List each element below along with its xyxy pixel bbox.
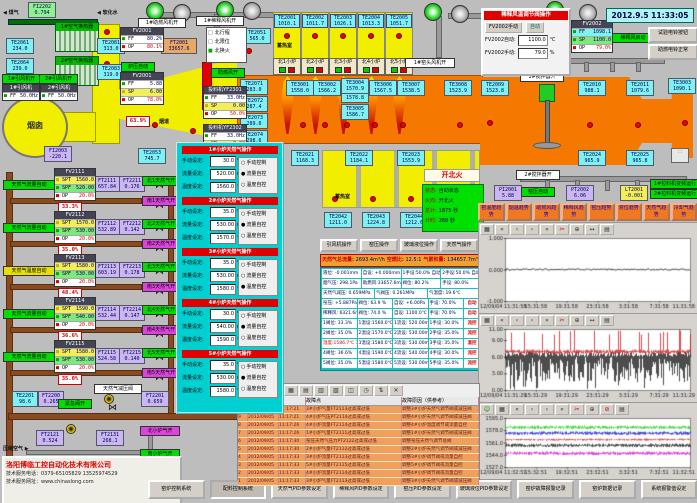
param-cell: 1阀位: 33.3%: [322, 319, 357, 328]
chart-tool-icon[interactable]: «: [495, 224, 509, 235]
chart-tool-icon[interactable]: ▤: [615, 404, 629, 415]
chamber-temp-tag: TE20031026.1: [330, 14, 356, 28]
chart-tool-icon[interactable]: ⊘: [600, 404, 614, 415]
section-title: 4#小炉天然气操作: [182, 299, 278, 307]
radio-option[interactable]: ●温度自控: [239, 282, 277, 293]
manual-set-input[interactable]: 35.0: [210, 360, 236, 371]
status-label: 开北火: [424, 169, 480, 182]
manual-set-input[interactable]: 30.0: [210, 156, 236, 167]
chart-tool-icon[interactable]: ‹: [525, 404, 539, 415]
pressure-gauge-icon: [66, 424, 76, 434]
trend-button[interactable]: 冷却气趋势: [671, 203, 697, 221]
checkbox-icon: □: [208, 39, 213, 45]
param-cell: 3手设: 35.0%: [429, 339, 464, 348]
chart-panel-temperature: ☺▦«‹›»✂⊕⊘▤: [478, 402, 697, 480]
radio-icon: ●: [241, 324, 245, 330]
controller-title: 投料机YF2301: [204, 87, 246, 94]
temp-set-input[interactable]: 1560.0: [210, 182, 236, 193]
section-title: 5#小炉天然气操作: [182, 350, 278, 358]
param-cell: 5阀位: 35.0%: [322, 359, 357, 368]
chart-tool-icon[interactable]: ⊕: [570, 224, 584, 235]
chart-tool-icon[interactable]: ☺: [480, 404, 494, 415]
status-label: 1#窑头风机开: [405, 58, 455, 68]
alarm-row[interactable]: 8 2012/09/05 11:17:26 4#小炉流量FT2114过高或过低 …: [238, 422, 479, 430]
instrument-tag: TE20221184.1: [345, 150, 373, 166]
nav-button[interactable]: 窑炉数据记录: [579, 480, 636, 499]
furnace-gas-popup: 1#小炉天然气操作 手动设定: 30.0 % 流量设定: 520.00 m³/h…: [176, 142, 284, 414]
instrument-tag: PI20015.88: [494, 185, 522, 201]
trend-button[interactable]: 窑温度趋势: [478, 203, 505, 221]
instrument-tag: TE20211168.3: [291, 150, 319, 166]
chart-toolbar: ▦«‹›»✂⊕↔▤: [479, 314, 697, 326]
trend-button[interactable]: 天然气趋势: [643, 203, 670, 221]
param-cell: 2手设: 35.0%: [429, 329, 464, 338]
manual-set-label: 手动设定:: [182, 157, 210, 166]
temp-set-input[interactable]: 1580.0: [210, 284, 236, 295]
instrument-tag: FT22010.659: [141, 391, 169, 407]
sensor-dot-icon: [344, 122, 350, 128]
temp-set-input[interactable]: 1580.0: [210, 386, 236, 397]
controller-row: ■ OP20.0%: [55, 278, 95, 286]
controller-title: 2#引风机: [41, 85, 77, 92]
status-label: 北3天然气开: [142, 262, 180, 272]
param-row: 液位: -0.001mm自设: +0.000mm1手设:50.0% 自动2手设:…: [322, 269, 480, 278]
controller-faceplate[interactable]: FV2001 ■ FF80.2% ■ OP80.1%: [120, 27, 164, 52]
flow-set-input[interactable]: 530.00: [210, 271, 236, 282]
instrument-tag: TE20091523.8: [481, 80, 509, 96]
sensor-dot-icon: [368, 33, 374, 39]
controller-title: 投料机YF2302: [204, 125, 246, 132]
chamber-temp-tag: TE20021011.7: [302, 14, 328, 28]
fan-icon[interactable]: [451, 5, 469, 23]
controller-row: ■ SPF540.00: [55, 313, 95, 321]
radio-option[interactable]: ○手动控制: [239, 209, 277, 220]
radio-icon: ○: [241, 182, 245, 188]
status-label: 天然气流量自动: [3, 223, 55, 233]
alarm-row[interactable]: 1 2012/09/05 11:17:33 3#小炉气量FT2113过高或过低 …: [238, 478, 479, 486]
param-cell: 1温设:1560.0℃: [358, 319, 393, 328]
fv2002-manual-unit: %: [550, 49, 555, 58]
param-cell: 3流设: 530.00m³/h: [393, 339, 428, 348]
temp-set-input[interactable]: 1590.0: [210, 335, 236, 346]
instrument-tag: TE2053745.7: [138, 148, 166, 164]
instrument-tag: TE2025965.8: [626, 150, 654, 166]
port-on-indicator: [279, 67, 286, 73]
trend-button[interactable]: 烟温趋势: [506, 203, 533, 221]
radio-option[interactable]: ●流量自控: [239, 220, 277, 231]
valve-icon[interactable]: ⋈: [108, 404, 117, 413]
controller-row: ■ OP78.0%: [121, 96, 163, 104]
fv2002-auto-button[interactable]: 自动: [526, 22, 544, 33]
chart-tool-icon[interactable]: ›: [525, 224, 539, 235]
param-cell: 窑压: +5.887Pa: [322, 299, 357, 308]
alarm-tool-icon[interactable]: ▦: [284, 385, 298, 396]
controller-title: FV2001: [121, 73, 163, 80]
chart-tool-icon[interactable]: »: [555, 404, 569, 415]
instrument-tag: FT2115524.58: [94, 348, 120, 364]
control-mode-group: ○手动控制 ●流量自控 ○温度自控: [238, 157, 278, 194]
status-label: 北4天然气开: [142, 305, 180, 315]
param-cell: 烟气压: 298.1Pa: [322, 279, 361, 288]
instrument-tag: TE30071538.5: [397, 80, 425, 96]
alarm-row[interactable]: 4 2012/09/05 11:17:33 3#小炉流量FT2113过高或过低 …: [238, 454, 479, 462]
radio-option[interactable]: ●流量自控: [239, 169, 277, 180]
chart-tool-icon[interactable]: ↔: [585, 315, 599, 326]
controller-title: FV2112: [55, 212, 95, 219]
section-title: 3#小炉天然气操作: [182, 248, 278, 256]
chart-tool-icon[interactable]: ⊕: [585, 404, 599, 415]
status-label: 南1天然气开: [142, 196, 180, 206]
port-off-indicator: [316, 67, 323, 73]
controller-row: ■ OP50.0%: [204, 110, 246, 118]
alarm-tool-icon[interactable]: ✕: [389, 385, 403, 396]
param-cell: 阀位: 80.2%: [402, 279, 441, 288]
alarm-tool-icon[interactable]: ▤: [299, 385, 313, 396]
level-trend-chart: [479, 235, 696, 311]
sensor-dot-icon: [396, 33, 402, 39]
port-indicators: [330, 67, 356, 73]
param-cell: 2手设:50.0% 自动: [441, 269, 480, 278]
pressure-trend-chart: [479, 326, 696, 400]
controller-faceplate[interactable]: FV2001 ■ FF5.88 ■ SP6.00: [120, 72, 164, 105]
instrument-tag: TE30081523.9: [444, 80, 472, 96]
sensor-dot-icon: [340, 33, 346, 39]
flow-set-label: 流量设定:: [182, 323, 210, 332]
nav-button[interactable]: 窑炉控制系统: [148, 480, 205, 499]
radio-option[interactable]: ○温度自控: [239, 333, 277, 344]
operation-button[interactable]: 玻璃液位操作: [400, 239, 438, 252]
chart-tool-icon[interactable]: ‹: [510, 315, 524, 326]
nav-button[interactable]: 窑炉故障报警记录: [517, 480, 574, 499]
trend-button[interactable]: 助燃风趋势: [533, 203, 560, 221]
port-label: 北3小炉: [330, 59, 356, 66]
controller-row: ■ OP20.0%: [55, 192, 95, 200]
operation-button[interactable]: 天然气操作: [440, 239, 478, 252]
alarm-row[interactable]: 9 2012/09/05 11:17:21 4#小炉气压PT2114过高或过低 …: [238, 414, 479, 422]
chart-toolbar: ▦«‹›»✂⊕↔▤: [479, 223, 697, 235]
burner-port[interactable]: 北4小炉: [357, 58, 385, 75]
pipe: [584, 62, 589, 72]
burner-port[interactable]: 北1小炉: [273, 58, 301, 75]
sensor-dot-icon: [487, 120, 493, 126]
radio-icon: ○: [241, 160, 245, 166]
controller-row: ■ FF80.2%: [121, 35, 163, 43]
param-cell: 2流设: 530.00m³/h: [393, 329, 428, 338]
radio-icon: ●: [241, 284, 245, 290]
param-cell: 阀位: 74.0 %: [358, 309, 393, 318]
sensor-dot-icon: [682, 120, 688, 126]
instrument-tag: FT2111657.84: [94, 176, 120, 192]
radio-icon: ○: [241, 386, 245, 392]
chart-tool-icon[interactable]: ✂: [555, 224, 569, 235]
port-on-indicator: [363, 67, 370, 73]
trend-button[interactable]: 窑压趋势: [588, 203, 615, 221]
status-label: ◀ 煤气: [2, 9, 20, 17]
controller-faceplate[interactable]: FV2115 ■ SPT1580.0 ■ SPF530.00: [54, 340, 96, 373]
radio-icon: ●: [241, 375, 245, 381]
controller-title: FV2001: [121, 28, 163, 35]
status-label: 天然气减压阀: [94, 384, 142, 394]
status-label: 1#引风机开: [2, 74, 41, 84]
stirrer-shaft: [545, 100, 550, 146]
param-cell: 5手设: 35.0%: [429, 359, 464, 368]
fv2002-manual-setpoint-input[interactable]: 79.0: [518, 48, 548, 59]
pipe: [610, 62, 615, 72]
chart-tool-icon[interactable]: ▤: [600, 315, 614, 326]
radio-option[interactable]: ●流量自控: [239, 373, 277, 384]
status-label: 天然气流量自动: [3, 352, 55, 362]
fan-icon[interactable]: [424, 3, 442, 21]
chart-panel-pressure: ▦«‹›»✂⊕↔▤: [478, 313, 697, 403]
controller-row: ■ OP20.0%: [55, 235, 95, 243]
param-cell: 自设: +6.00Pa: [393, 299, 428, 308]
status-label: 天然气流量自动: [3, 309, 55, 319]
flow-set-input[interactable]: 530.00: [210, 373, 236, 384]
operation-button[interactable]: 窑压操作: [360, 239, 398, 252]
param-cell: 5温设:1580.0℃: [358, 359, 393, 368]
status-label: 1#拉料机变频运行: [650, 179, 697, 189]
status-label: 北小炉气开: [140, 426, 180, 436]
alarm-row[interactable]: 5 2012/09/05 11:17:30 2#小炉气量FT2112过高或过低 …: [238, 446, 479, 454]
radio-icon: ○: [241, 233, 245, 239]
bell-button[interactable]: 试验电铃按钮: [648, 27, 697, 43]
fv2002-auto-setpoint-input[interactable]: 1100.0: [518, 35, 548, 46]
control-mode-group: ○手动控制 ●流量自控 ○温度自控: [238, 310, 278, 347]
control-mode-group: ○手动控制 ●流量自控 ○温度自控: [238, 208, 278, 245]
chart-tool-icon[interactable]: ▦: [495, 404, 509, 415]
port-on-indicator: [307, 67, 314, 73]
valve-position-readout: 63.9%: [126, 116, 150, 127]
temperature-trend-chart: [479, 415, 696, 477]
controller-row: ■ FF1098.1: [572, 28, 612, 36]
status-label: 助燃风开: [211, 68, 245, 78]
instrument-tag: TE20231553.9: [397, 150, 425, 166]
alarm-row[interactable]: 2 2012/09/05 11:17:33 4#小炉流量FT2114过高或过低 …: [238, 470, 479, 478]
param-cell: 手设: 80.0%: [441, 279, 480, 288]
alarm-row[interactable]: 6 2012/09/05 11:17:30 窑压天然气压力PT2122过高或过低…: [238, 438, 479, 446]
instrument-tag: TE30011558.0: [286, 80, 314, 96]
radio-option[interactable]: ○温度自控: [239, 231, 277, 242]
radio-option[interactable]: ○温度自控: [239, 180, 277, 191]
chart-tool-icon[interactable]: »: [540, 224, 554, 235]
chart-tool-icon[interactable]: «: [495, 315, 509, 326]
operation-button[interactable]: 引风机操作: [320, 239, 358, 252]
radio-option[interactable]: ○手动控制: [239, 158, 277, 169]
status-row: 火向:开北火: [425, 196, 481, 206]
pipe: [436, 16, 442, 58]
status-label: 天然气温度自动: [3, 266, 55, 276]
sensor-dot-icon: [400, 122, 406, 128]
controller-faceplate[interactable]: FV2111 ■ SPT1560.0 ■ SPF520.00: [54, 168, 96, 201]
alarm-row[interactable]: 3 2012/09/05 11:17:33 5#小炉流量FT2115过高或过低 …: [238, 462, 479, 470]
controller-row: ■ SPF530.00: [55, 356, 95, 364]
instrument-tag: FT200133657.6: [161, 38, 197, 54]
manual-set-input[interactable]: 35.0: [210, 207, 236, 218]
alarm-row[interactable]: 7 2012/09/05 11:17:26 1#小炉气量FT2111过高或过低 …: [238, 430, 479, 438]
chart-tool-icon[interactable]: ✂: [570, 404, 584, 415]
nav-button[interactable]: 系统报警值设定: [641, 480, 697, 499]
radio-option[interactable]: ○流量自控: [239, 271, 277, 282]
controller-faceplate[interactable]: FV2002 ■ FF1098.1 ■ SP1100.0: [571, 20, 613, 53]
controller-row: ■ OP20.0%: [55, 364, 95, 372]
controller-row: ■ SPT1570.0: [55, 219, 95, 227]
alarm-tool-icon[interactable]: ⇅: [374, 385, 388, 396]
chart-tool-icon[interactable]: ↔: [585, 224, 599, 235]
chart-tool-icon[interactable]: ‹: [510, 224, 524, 235]
chart-tool-icon[interactable]: ⊕: [570, 315, 584, 326]
control-mode-group: ○手动控制 ●流量自控 ○温度自控: [238, 361, 278, 398]
burner-port[interactable]: 北3小炉: [329, 58, 357, 75]
radio-option[interactable]: ○手动控制: [239, 362, 277, 373]
bell-button[interactable]: 助燃电铃正常: [648, 44, 697, 60]
pressure-gauge-icon: [104, 394, 114, 404]
controller-row: ■ FF50.0Hz: [3, 92, 39, 100]
controller-row: ■ FF5.88: [121, 80, 163, 88]
controller-faceplate[interactable]: FV2114 ■ SPT1590.0 ■ SPF540.00: [54, 297, 96, 330]
radio-option[interactable]: ○手动控制: [239, 260, 277, 271]
manual-set-input[interactable]: 30.0: [210, 309, 236, 320]
controller-faceplate[interactable]: 1#引风机 ■ FF50.0Hz: [2, 84, 40, 101]
radio-icon: ○: [241, 364, 245, 370]
controller-row: ■ FF50.0Hz: [41, 92, 77, 100]
flow-set-input[interactable]: 530.00: [210, 220, 236, 231]
alarm-rows: 10 2012/09/05 11:17:21 3#小炉气量FT2113过高或过低…: [238, 406, 479, 486]
instrument-tag: TE2024965.9: [578, 150, 606, 166]
param-cell: 手设: 70.0%: [429, 309, 464, 318]
instrument-tag: FI22020.794: [28, 2, 56, 18]
controller-faceplate[interactable]: FV2113 ■ SPT1580.0 ■ SPF530.00: [54, 254, 96, 287]
param-cell: 2阀位: 35.0%: [322, 329, 357, 338]
status-row: 状态:自动状态: [425, 186, 481, 196]
total-item: 空燃比: 12.5:1: [387, 255, 422, 266]
instrument-tag: TE30051586.7: [341, 104, 369, 120]
instrument-tag: TE30041570.9: [341, 78, 369, 94]
param-cell: 阀位: 63.9 %: [358, 299, 393, 308]
control-mode-group: ○手动控制 ○流量自控 ●温度自控: [238, 259, 278, 296]
chart-tool-icon[interactable]: «: [510, 404, 524, 415]
flow-set-input[interactable]: 540.00: [210, 322, 236, 333]
instrument-tag: TE20431224.8: [362, 212, 390, 228]
chart-tool-icon[interactable]: ✂: [555, 315, 569, 326]
status-label: 南3天然气开: [142, 282, 180, 292]
controller-title: FV2114: [55, 298, 95, 305]
sensor-dot-icon: [300, 122, 306, 128]
chart-tool-icon[interactable]: »: [540, 315, 554, 326]
controller-row: ■ SPT1590.0: [55, 305, 95, 313]
instrument-tag: PT20026.06: [566, 185, 594, 201]
alarm-tool-icon[interactable]: ◫: [344, 385, 358, 396]
temp-set-input[interactable]: 1570.0: [210, 233, 236, 244]
param-cell: 手设: 70.0%: [429, 299, 464, 308]
param-row: 稀释风: 6321.6m³/h阀位: 74.0 %自设: 1100.0℃手设: …: [322, 309, 480, 318]
chart-tool-icon[interactable]: ▤: [600, 224, 614, 235]
param-row: 4阀位: 36.6%4温设:1590.0℃4流设: 540.00m³/h4手设:…: [322, 349, 480, 358]
gas-totals-bar: 天然气总流量: 2693.4m³/h 空燃比: 12.5:1 气累积量: 134…: [320, 254, 480, 267]
flow-set-label: 流量设定:: [182, 374, 210, 383]
controller-row: ■ SPT1580.0: [55, 262, 95, 270]
controller-title: 1#引风机: [3, 85, 39, 92]
fv2002-auto-unit: ℃: [550, 36, 556, 45]
pipe: [605, 180, 610, 191]
instrument-tag: TE30031090.1: [668, 78, 696, 94]
radio-option[interactable]: ●流量自控: [239, 322, 277, 333]
fv2002-manual-button[interactable]: FV2002手动: [485, 22, 522, 33]
chart-toolbar: ☺▦«‹›»✂⊕⊘▤: [479, 403, 697, 415]
param-cell: 助燃风:33657.6m³/h: [362, 279, 401, 288]
param-row: 窑压: +5.887Pa阀位: 63.9 %自设: +6.00Pa手设: 70.…: [322, 299, 480, 308]
manual-set-input[interactable]: 35.0: [210, 258, 236, 269]
status-row: 计时:268 秒: [425, 216, 481, 226]
status-label: 2#引风机开: [39, 74, 78, 84]
sensor-dot-icon: [635, 122, 641, 128]
flow-set-input[interactable]: 520.00: [210, 169, 236, 180]
controller-faceplate[interactable]: 2#引风机 ■ FF50.0Hz: [40, 84, 78, 101]
trend-button[interactable]: 稀释风趋势: [561, 203, 588, 221]
radio-option[interactable]: ○手动控制: [239, 311, 277, 322]
chart-tool-icon[interactable]: ▦: [480, 315, 494, 326]
radio-icon: ○: [241, 335, 245, 341]
furnace-gas-section: 3#小炉天然气操作 手动设定: 35.0 % 流量设定: 530.00 m³/h…: [180, 248, 280, 297]
chart-tool-icon[interactable]: ▦: [480, 224, 494, 235]
operation-buttons: 引风机操作窑压操作玻璃液位操作天然气操作: [320, 239, 478, 252]
sensor-dot-icon: [312, 33, 318, 39]
burner-port[interactable]: 北2小炉: [301, 58, 329, 75]
param-cell: 4阀位: 36.6%: [322, 349, 357, 358]
param-row: 5阀位: 35.0%5温设:1580.0℃5流设: 530.00m³/h5手设:…: [322, 359, 480, 368]
alarm-tool-icon[interactable]: ◷: [359, 385, 373, 396]
sensor-dot-icon: [372, 122, 378, 128]
company-phone: 技术服务电话：0379-65105829 13525974529: [6, 470, 178, 478]
status-label: ◀ 软化水: [96, 9, 119, 17]
trend-button[interactable]: 液位趋势: [616, 203, 643, 221]
radio-option[interactable]: ○温度自控: [239, 384, 277, 395]
trend-buttons: 窑温度趋势烟温趋势助燃风趋势稀释风趋势窑压趋势液位趋势天然气趋势冷却气趋势: [478, 203, 697, 221]
chart-tool-icon[interactable]: ›: [525, 315, 539, 326]
parameter-grid: 液位: -0.001mm自设: +0.000mm1手设:50.0% 自动2手设:…: [320, 267, 482, 371]
controller-faceplate[interactable]: FV2112 ■ SPT1570.0 ■ SPF530.00: [54, 211, 96, 244]
valve-position-readout: 35.0%: [58, 374, 82, 385]
status-row: 总计:1875 秒: [425, 206, 481, 216]
pipe: [26, 450, 150, 455]
param-row: 1阀位: 33.3%1温设:1560.0℃1流设: 520.00m³/h1手设:…: [322, 319, 480, 328]
furnace-gas-section: 4#小炉天然气操作 手动设定: 30.0 % 流量设定: 540.00 m³/h…: [180, 299, 280, 348]
total-item: 气累积量: 134657.7m³: [423, 255, 477, 266]
chamber-temp-tag: TE20051051.7: [386, 14, 412, 28]
chart-tool-icon[interactable]: ›: [540, 404, 554, 415]
stirrer-disc: [533, 142, 561, 149]
status-label: 蓄热室: [334, 193, 351, 201]
radio-icon: ○: [241, 211, 245, 217]
fan-icon[interactable]: [243, 2, 261, 20]
alarm-tool-icon[interactable]: ▧: [329, 385, 343, 396]
checkbox-icon: ■: [208, 48, 213, 54]
alarm-tool-icon[interactable]: ▥: [314, 385, 328, 396]
checkbox-icon: □: [208, 30, 213, 36]
status-label: 紧急阀开: [58, 399, 92, 409]
port-off-indicator: [344, 67, 351, 73]
param-cell: 自设: +0.000mm: [362, 269, 401, 278]
instrument-tag: FT2114532.44: [94, 305, 120, 321]
instrument-tag: TE2064239.0: [6, 58, 34, 74]
controller-faceplate[interactable]: 投料机YF2301 ■ FF33.0Hz ■ SP0.00: [203, 86, 247, 119]
sensor-dot-icon: [408, 196, 414, 202]
port-indicators: [302, 67, 328, 73]
status-label: 北1天然气开: [142, 176, 180, 186]
status-label: 窑压自动: [521, 187, 555, 197]
param-row: 2阀位: 35.0%2温设:1570.0℃2流设: 530.00m³/h2手设:…: [322, 329, 480, 338]
temp-set-label: 温度设定:: [182, 336, 210, 345]
param-row: 温度:1586.7℃ 3阀位: 48.4%3温设:1580.0℃3流设: 530…: [322, 339, 480, 348]
